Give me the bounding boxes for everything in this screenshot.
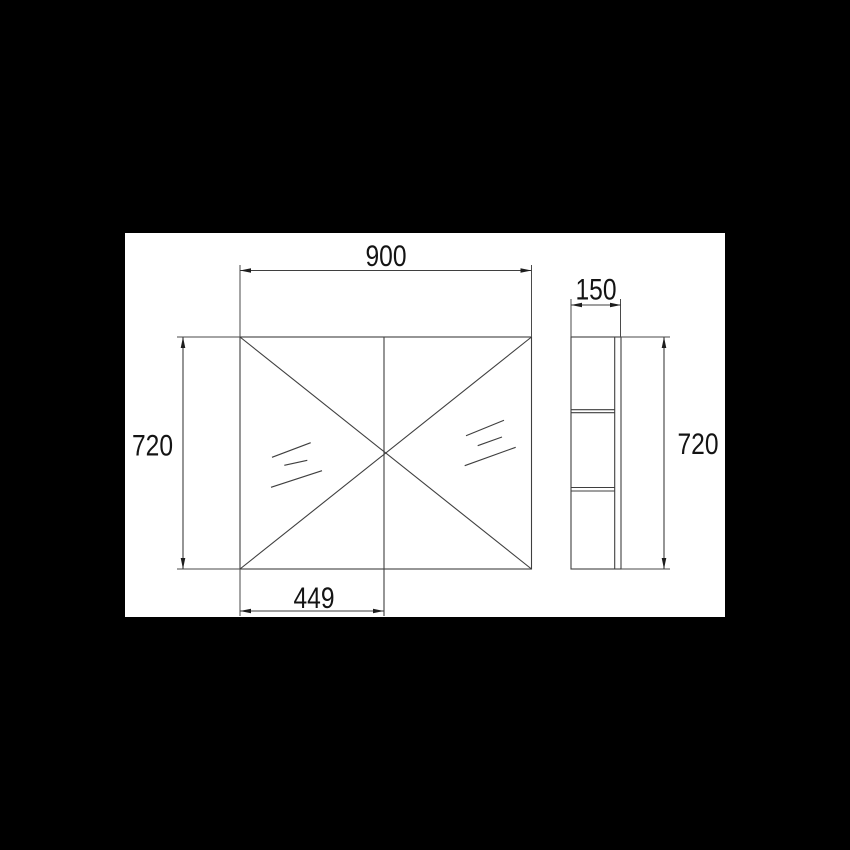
dim-label-left-door-width: 449 [293, 581, 334, 615]
dim-label-side-height: 720 [677, 427, 718, 461]
shelf-lines [571, 410, 615, 491]
dim-label-front-width: 900 [365, 239, 406, 273]
dim-side-height: 720 [621, 337, 719, 569]
hatch-line [465, 447, 516, 465]
dim-front-width: 900 [240, 239, 532, 337]
dim-label-side-depth: 150 [575, 272, 616, 306]
arrowhead-up-icon [662, 337, 667, 348]
mirror-hatch-left [271, 443, 322, 488]
hatch-line [271, 471, 322, 488]
arrowhead-left-icon [240, 268, 251, 273]
technical-drawing: 900 150 720 [125, 233, 725, 617]
mirror-hatch-right [465, 420, 516, 465]
dim-side-depth: 150 [571, 272, 621, 337]
cabinet-side-outline [571, 337, 621, 569]
side-view [571, 337, 621, 569]
drawing-sheet: 900 150 720 [125, 233, 725, 617]
dim-front-height: 720 [132, 337, 240, 569]
arrowhead-down-icon [662, 558, 667, 569]
dim-left-door-width: 449 [240, 569, 384, 616]
arrowhead-left-icon [240, 609, 251, 614]
arrowhead-up-icon [181, 337, 186, 348]
hatch-line [466, 420, 504, 435]
hatch-line [478, 437, 502, 446]
hatch-line [284, 460, 307, 465]
screenshot-canvas: 900 150 720 [0, 0, 850, 850]
arrowhead-down-icon [181, 558, 186, 569]
arrowhead-right-icon [521, 268, 532, 273]
hatch-line [272, 443, 311, 458]
dim-label-front-height: 720 [132, 428, 173, 462]
front-view [240, 337, 532, 616]
arrowhead-right-icon [373, 609, 384, 614]
